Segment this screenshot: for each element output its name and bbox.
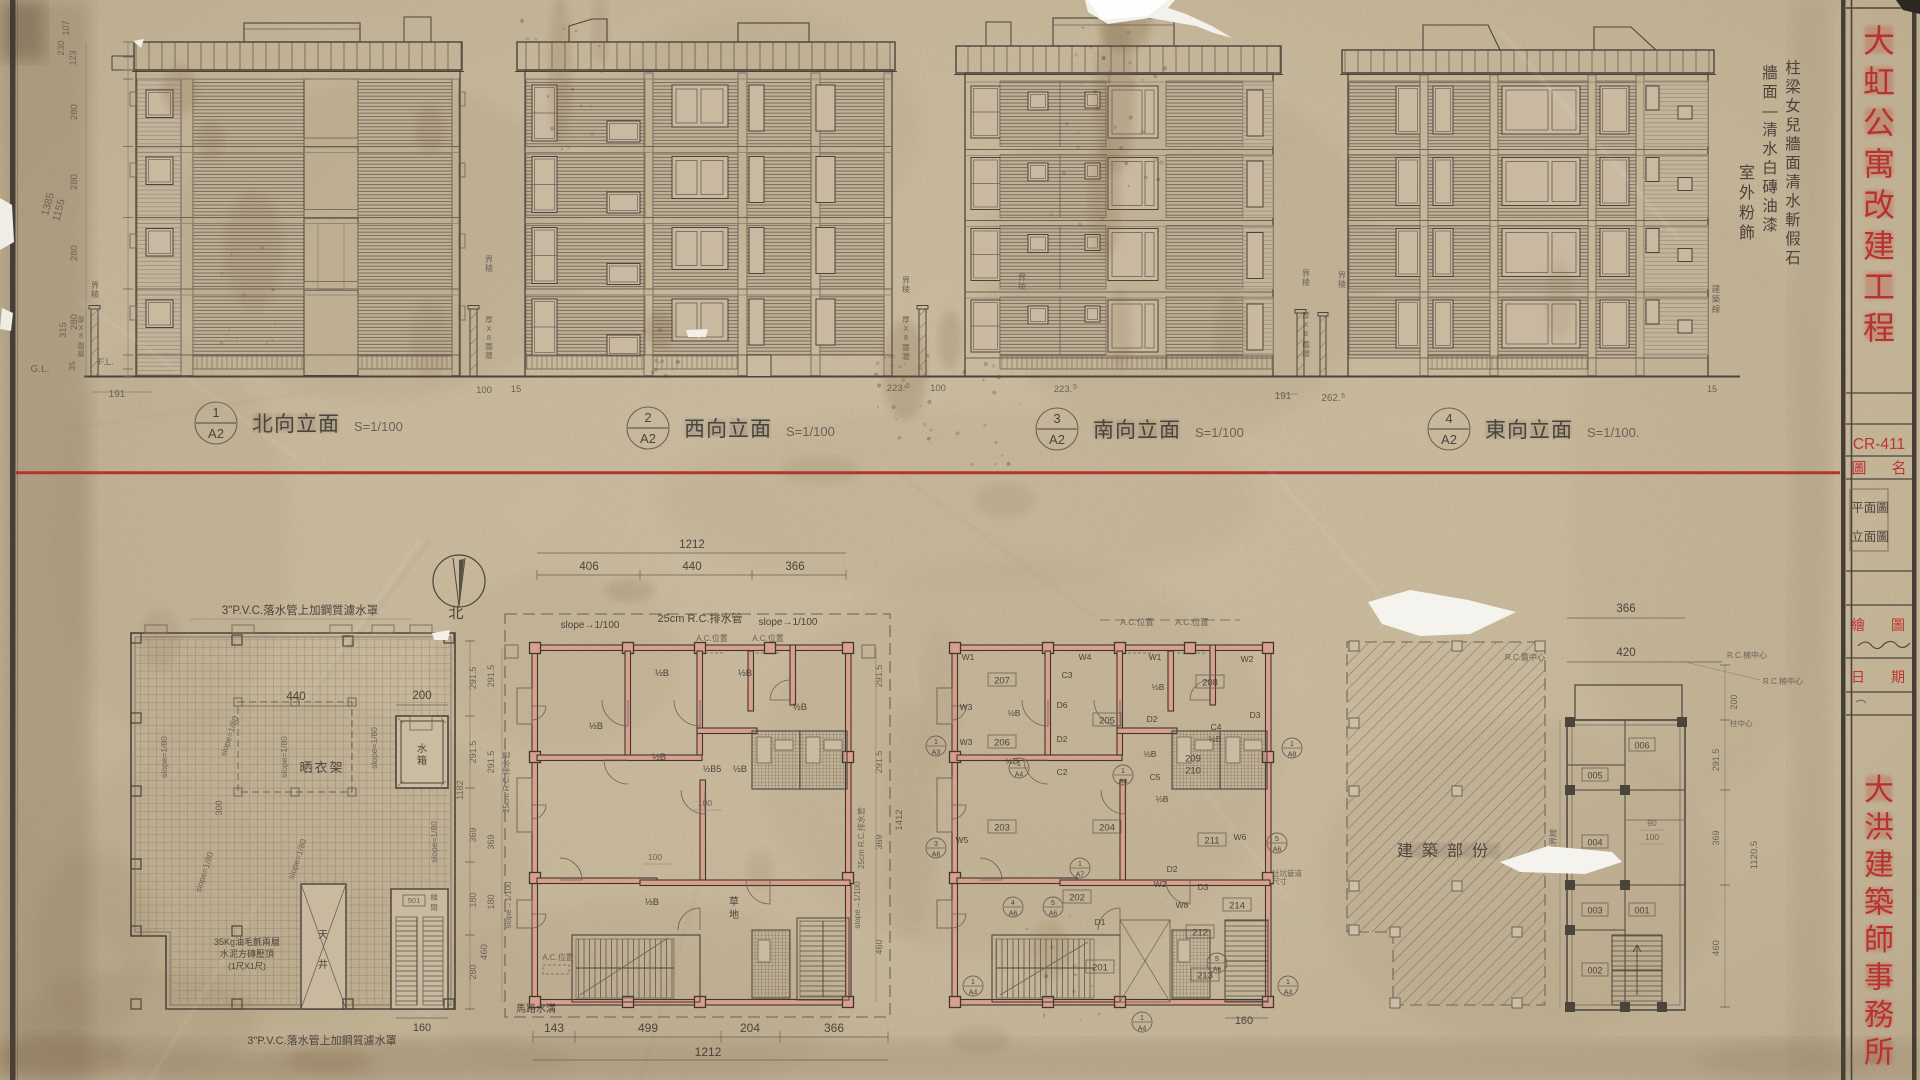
svg-text:D2: D2 — [1167, 864, 1178, 874]
svg-text:X: X — [486, 324, 491, 333]
svg-text:002: 002 — [1587, 966, 1602, 976]
svg-text:A2: A2 — [640, 431, 656, 446]
svg-text:W3: W3 — [960, 702, 973, 712]
svg-text:F.L.: F.L. — [98, 357, 113, 368]
svg-text:圍: 圍 — [485, 342, 493, 351]
svg-text:001: 001 — [1634, 906, 1649, 916]
svg-text:S=1/100.: S=1/100. — [1587, 425, 1639, 440]
svg-text:清: 清 — [1785, 173, 1801, 191]
svg-text:牆: 牆 — [1762, 64, 1778, 82]
svg-text:馬路水溝: 馬路水溝 — [516, 1002, 556, 1015]
svg-text:280: 280 — [69, 174, 80, 190]
svg-text:厚: 厚 — [78, 316, 85, 324]
svg-text:300: 300 — [214, 800, 224, 815]
svg-text:003: 003 — [1587, 906, 1602, 916]
svg-text:北: 北 — [448, 605, 463, 622]
svg-text:面: 面 — [1785, 155, 1801, 172]
svg-text:½B: ½B — [1209, 734, 1222, 744]
svg-text:100: 100 — [1645, 832, 1659, 842]
svg-text:建築部份: 建築部份 — [1397, 842, 1497, 860]
svg-text:A.C.位置: A.C.位置 — [752, 633, 784, 643]
svg-text:牆: 牆 — [485, 350, 493, 360]
svg-text:界: 界 — [1338, 271, 1346, 280]
svg-text:大: 大 — [1863, 23, 1895, 59]
svg-text:D1: D1 — [1095, 917, 1106, 927]
svg-text:5: 5 — [1341, 393, 1345, 400]
svg-text:3: 3 — [1053, 411, 1060, 426]
svg-text:½B: ½B — [738, 668, 752, 679]
svg-text:203: 203 — [994, 823, 1010, 834]
svg-text:205: 205 — [1099, 716, 1115, 727]
svg-text:slope=1/80: slope=1/80 — [159, 736, 169, 778]
svg-text:西向立面: 西向立面 — [684, 418, 772, 441]
svg-text:漆: 漆 — [1762, 216, 1778, 234]
svg-text:界: 界 — [485, 255, 493, 264]
svg-text:X: X — [79, 325, 84, 332]
svg-text:石: 石 — [1785, 250, 1801, 267]
svg-text:梁: 梁 — [1785, 78, 1801, 96]
svg-text:209: 209 — [1185, 754, 1201, 765]
svg-text:006: 006 — [1634, 741, 1649, 751]
svg-text:牆: 牆 — [78, 349, 85, 358]
svg-text:slope=1/80: slope=1/80 — [429, 821, 439, 863]
svg-text:稜: 稜 — [1018, 282, 1026, 291]
svg-text:梯: 梯 — [430, 892, 438, 902]
svg-text:W5: W5 — [956, 835, 969, 845]
svg-text:地: 地 — [729, 908, 739, 921]
svg-text:師: 師 — [1864, 924, 1894, 957]
svg-text:洪: 洪 — [1864, 812, 1894, 845]
svg-text:A7: A7 — [1076, 872, 1085, 879]
svg-text:5: 5 — [1215, 956, 1219, 963]
svg-text:圖: 圖 — [1891, 617, 1905, 633]
svg-text:A4: A4 — [969, 990, 978, 997]
svg-text:A.C.位置: A.C.位置 — [542, 952, 574, 962]
svg-text:室: 室 — [1739, 164, 1755, 182]
svg-text:1212: 1212 — [679, 539, 705, 551]
svg-text:W1: W1 — [1149, 652, 1162, 662]
svg-text:面: 面 — [1762, 84, 1778, 101]
svg-text:200: 200 — [1729, 694, 1739, 709]
svg-text:北向立面: 北向立面 — [252, 413, 340, 436]
svg-text:2: 2 — [644, 410, 651, 425]
svg-text:事: 事 — [1864, 962, 1894, 995]
svg-text:程: 程 — [1863, 310, 1895, 346]
svg-text:A4: A4 — [1284, 990, 1293, 997]
svg-text:280: 280 — [69, 104, 80, 120]
svg-text:A8: A8 — [1288, 752, 1297, 759]
svg-text:406: 406 — [579, 561, 598, 573]
svg-text:5: 5 — [1275, 836, 1279, 843]
svg-text:稜: 稜 — [1302, 278, 1310, 287]
svg-text:1182: 1182 — [455, 780, 465, 799]
svg-text:日: 日 — [1851, 669, 1865, 685]
svg-text:90: 90 — [1647, 818, 1657, 828]
svg-text:間: 間 — [430, 903, 438, 912]
svg-text:寓: 寓 — [1863, 146, 1895, 182]
svg-text:slope→1/100: slope→1/100 — [561, 620, 620, 631]
svg-text:柱: 柱 — [1785, 59, 1801, 77]
svg-text:東向立面: 東向立面 — [1485, 419, 1573, 442]
svg-text:slope→1/100: slope→1/100 — [504, 881, 513, 929]
svg-text:R.C.簷中心: R.C.簷中心 — [1505, 652, 1545, 662]
svg-text:3: 3 — [934, 841, 938, 848]
svg-text:3"P.V.C.落水管上加鋼質濾水罩: 3"P.V.C.落水管上加鋼質濾水罩 — [222, 603, 378, 617]
svg-text:箱: 箱 — [417, 754, 427, 767]
svg-text:1: 1 — [1121, 768, 1125, 775]
svg-text:½B: ½B — [652, 752, 666, 763]
svg-text:名: 名 — [1891, 460, 1906, 477]
svg-text:R.C.楠中心: R.C.楠中心 — [1763, 676, 1803, 686]
svg-text:D2: D2 — [1147, 714, 1158, 724]
svg-text:W2: W2 — [1154, 879, 1167, 889]
svg-text:G.L.: G.L. — [31, 364, 50, 375]
svg-text:440: 440 — [286, 691, 305, 703]
svg-text:25cm R.C.排水管: 25cm R.C.排水管 — [501, 751, 511, 813]
svg-text:期: 期 — [1891, 669, 1905, 685]
svg-text:180: 180 — [468, 892, 478, 907]
svg-text:slope→1/100: slope→1/100 — [853, 881, 862, 929]
svg-text:100: 100 — [930, 383, 946, 394]
svg-text:460: 460 — [479, 944, 490, 960]
svg-text:280: 280 — [468, 964, 478, 979]
svg-text:圍: 圍 — [78, 342, 85, 350]
svg-text:南向立面: 南向立面 — [1093, 419, 1181, 442]
svg-text:油: 油 — [1762, 197, 1778, 215]
svg-text:界: 界 — [1018, 273, 1026, 282]
svg-text:平面圖: 平面圖 — [1851, 501, 1889, 515]
svg-text:½B: ½B — [645, 897, 659, 908]
svg-text:½B: ½B — [1008, 708, 1021, 718]
svg-text:slope→1/100: slope→1/100 — [759, 617, 818, 628]
svg-text:8: 8 — [79, 333, 83, 340]
svg-text:211: 211 — [1204, 836, 1219, 847]
svg-text:180: 180 — [486, 894, 496, 909]
svg-text:100: 100 — [476, 385, 492, 396]
svg-text:水: 水 — [1785, 192, 1801, 210]
svg-text:1: 1 — [971, 979, 975, 986]
svg-text:460: 460 — [874, 939, 884, 954]
svg-text:315: 315 — [58, 322, 69, 338]
svg-text:160: 160 — [413, 1022, 431, 1034]
svg-text:123: 123 — [68, 50, 78, 65]
svg-text:A2: A2 — [1441, 432, 1457, 447]
svg-text:公: 公 — [1863, 105, 1895, 141]
svg-text:界: 界 — [91, 281, 99, 290]
svg-text:8: 8 — [1304, 329, 1308, 338]
svg-text:外: 外 — [1739, 184, 1755, 202]
svg-text:S=1/100: S=1/100 — [354, 419, 403, 434]
svg-text:D6: D6 — [1057, 700, 1068, 710]
svg-text:208: 208 — [1202, 678, 1218, 689]
svg-text:C3: C3 — [1062, 670, 1073, 680]
svg-text:1: 1 — [1290, 741, 1294, 748]
svg-text:1212: 1212 — [695, 1045, 722, 1059]
svg-text:460: 460 — [1711, 940, 1722, 956]
svg-text:牆: 牆 — [1785, 135, 1801, 153]
svg-text:291.5: 291.5 — [468, 667, 478, 690]
svg-text:W1: W1 — [962, 652, 975, 662]
svg-text:A6: A6 — [1009, 911, 1018, 918]
svg-text:晒衣架: 晒衣架 — [299, 760, 344, 775]
svg-text:420: 420 — [1616, 647, 1635, 659]
svg-text:W4: W4 — [1079, 652, 1092, 662]
svg-text:4: 4 — [1445, 411, 1452, 426]
svg-text:369: 369 — [486, 834, 496, 849]
svg-text:212: 212 — [1192, 928, 1208, 939]
svg-text:清: 清 — [1762, 121, 1778, 139]
svg-text:磚: 磚 — [1762, 178, 1778, 196]
svg-text:X: X — [1303, 320, 1308, 329]
svg-text:1: 1 — [1140, 1015, 1144, 1022]
svg-text:稜: 稜 — [91, 290, 99, 299]
svg-text:223.: 223. — [1054, 384, 1073, 395]
svg-text:W3: W3 — [960, 737, 973, 747]
svg-text:369: 369 — [874, 834, 884, 849]
svg-text:線: 線 — [1712, 304, 1721, 314]
svg-text:C4: C4 — [1211, 722, 1222, 732]
svg-text:A4: A4 — [1138, 1026, 1147, 1033]
svg-text:291.5: 291.5 — [468, 741, 478, 764]
svg-text:slope=1/80: slope=1/80 — [279, 736, 289, 778]
svg-text:291.5: 291.5 — [486, 665, 496, 688]
svg-text:369: 369 — [1711, 830, 1721, 845]
svg-text:大: 大 — [1864, 774, 1894, 807]
svg-text:A6: A6 — [1213, 967, 1222, 974]
svg-text:366: 366 — [1616, 603, 1635, 615]
svg-text:½B: ½B — [655, 668, 669, 679]
svg-text:虹: 虹 — [1863, 64, 1895, 100]
svg-text:厚: 厚 — [485, 315, 493, 324]
svg-text:稜: 稜 — [1338, 280, 1346, 289]
svg-text:4: 4 — [1011, 900, 1015, 907]
svg-text:207: 207 — [994, 676, 1010, 687]
svg-text:A4: A4 — [1015, 772, 1024, 779]
svg-text:A.C.位置: A.C.位置 — [1175, 617, 1209, 627]
svg-text:圍: 圍 — [1302, 340, 1310, 349]
svg-text:天: 天 — [318, 930, 328, 941]
svg-text:繪: 繪 — [1851, 617, 1865, 633]
svg-text:25cm R.C.排水管: 25cm R.C.排水管 — [856, 807, 866, 869]
svg-text:W2: W2 — [1241, 654, 1254, 664]
svg-text:½B: ½B — [1152, 682, 1165, 692]
svg-text:D2: D2 — [1057, 734, 1068, 744]
svg-text:C2: C2 — [1057, 767, 1068, 777]
svg-text:水: 水 — [1762, 140, 1778, 158]
svg-text:工: 工 — [1863, 269, 1895, 305]
svg-text:女: 女 — [1785, 96, 1801, 115]
svg-text:白: 白 — [1762, 159, 1778, 177]
svg-text:440: 440 — [682, 561, 701, 573]
svg-text:飾: 飾 — [1739, 224, 1755, 242]
svg-text:15: 15 — [1707, 384, 1717, 394]
svg-text:S=1/100: S=1/100 — [786, 424, 835, 439]
svg-text:15: 15 — [511, 384, 522, 395]
svg-text:291.5: 291.5 — [874, 751, 884, 774]
svg-text:1: 1 — [1017, 761, 1021, 768]
svg-text:005: 005 — [1587, 771, 1602, 781]
svg-text:½B: ½B — [589, 721, 603, 732]
svg-text:201: 201 — [1092, 963, 1108, 974]
svg-text:S=1/100: S=1/100 — [1195, 425, 1244, 440]
svg-text:1: 1 — [1078, 861, 1082, 868]
svg-text:厚: 厚 — [1302, 311, 1310, 320]
svg-text:A2: A2 — [208, 426, 224, 441]
svg-text:務: 務 — [1864, 999, 1894, 1032]
svg-text:291.5: 291.5 — [1711, 749, 1721, 772]
svg-text:⅓B: ⅓B — [1156, 794, 1169, 804]
svg-text:262.: 262. — [1321, 393, 1340, 404]
svg-text:½B: ½B — [733, 764, 747, 775]
svg-text:143: 143 — [544, 1021, 564, 1035]
svg-text:D3: D3 — [1250, 710, 1261, 720]
svg-text:建: 建 — [1864, 849, 1894, 882]
svg-text:A2: A2 — [1049, 432, 1065, 447]
svg-text:A6: A6 — [1273, 847, 1282, 854]
svg-text:CR-411: CR-411 — [1853, 436, 1905, 453]
svg-text:兒: 兒 — [1785, 116, 1801, 134]
svg-text:½B5: ½B5 — [703, 764, 722, 774]
svg-text:圖: 圖 — [1851, 460, 1866, 477]
svg-text:8: 8 — [487, 333, 491, 342]
svg-text:291.5: 291.5 — [486, 751, 496, 774]
svg-text:202: 202 — [1069, 893, 1085, 904]
svg-text:25cm R.C.排水管: 25cm R.C.排水管 — [658, 611, 743, 625]
svg-text:(1尺X1尺): (1尺X1尺) — [228, 961, 266, 971]
svg-text:160: 160 — [1235, 1015, 1253, 1027]
svg-text:004: 004 — [1587, 838, 1602, 848]
svg-text:slope=1/80: slope=1/80 — [369, 727, 379, 769]
svg-text:35: 35 — [67, 361, 77, 371]
svg-text:建: 建 — [1863, 228, 1895, 264]
svg-text:D3: D3 — [1198, 882, 1209, 892]
svg-text:假: 假 — [1785, 230, 1801, 248]
svg-text:366: 366 — [785, 561, 804, 573]
svg-text:牆: 牆 — [1302, 348, 1310, 358]
svg-text:5: 5 — [1051, 900, 1055, 907]
svg-text:369: 369 — [468, 827, 478, 842]
svg-text:291.5: 291.5 — [874, 665, 884, 688]
svg-text:粉: 粉 — [1739, 204, 1755, 222]
svg-text:35Kg油毛氈兩層: 35Kg油毛氈兩層 — [214, 936, 280, 947]
svg-text:井: 井 — [318, 958, 328, 971]
svg-text:5: 5 — [1073, 384, 1077, 391]
svg-text:A.C.位置: A.C.位置 — [696, 633, 728, 643]
svg-text:200: 200 — [412, 690, 431, 702]
svg-text:築: 築 — [1864, 887, 1894, 920]
svg-text:1: 1 — [1286, 979, 1290, 986]
svg-text:斬: 斬 — [1785, 211, 1801, 229]
svg-text:R.C.楠中心: R.C.楠中心 — [1727, 650, 1767, 660]
svg-text:230: 230 — [56, 40, 66, 55]
svg-text:界: 界 — [902, 276, 910, 285]
svg-text:界: 界 — [1302, 269, 1310, 278]
svg-text:204: 204 — [1099, 823, 1115, 834]
svg-text:107: 107 — [61, 20, 71, 35]
svg-text:100: 100 — [648, 852, 662, 862]
svg-text:C5: C5 — [1150, 772, 1161, 782]
svg-text:½B: ½B — [1144, 749, 1157, 759]
svg-text:A6: A6 — [1049, 911, 1058, 918]
svg-text:稜: 稜 — [485, 264, 493, 273]
svg-text:改: 改 — [1863, 187, 1895, 223]
svg-text:稜: 稜 — [902, 285, 910, 294]
svg-text:191: 191 — [1275, 391, 1292, 402]
svg-text:366: 366 — [824, 1021, 844, 1035]
svg-text:214: 214 — [1229, 901, 1245, 912]
svg-text:A4: A4 — [1119, 779, 1128, 786]
svg-text:建: 建 — [1712, 284, 1721, 294]
svg-text:1120.5: 1120.5 — [1749, 841, 1760, 869]
svg-text:501: 501 — [408, 896, 421, 905]
svg-text:W8: W8 — [1176, 900, 1189, 910]
svg-text:213: 213 — [1197, 971, 1213, 982]
svg-text:280: 280 — [69, 245, 80, 261]
svg-text:206: 206 — [994, 738, 1010, 749]
svg-text:水: 水 — [417, 743, 427, 755]
svg-text:柱中心: 柱中心 — [1730, 718, 1753, 728]
svg-text:204: 204 — [740, 1021, 760, 1035]
svg-text:191: 191 — [109, 389, 126, 400]
svg-text:立面圖: 立面圖 — [1851, 529, 1889, 544]
svg-text:築: 築 — [1712, 294, 1721, 304]
svg-text:A.C.位置: A.C.位置 — [1120, 617, 1154, 627]
svg-text:100: 100 — [698, 798, 712, 808]
svg-text:½B: ½B — [793, 702, 807, 713]
svg-text:—: — — [1762, 103, 1778, 120]
svg-text:草: 草 — [729, 896, 739, 908]
